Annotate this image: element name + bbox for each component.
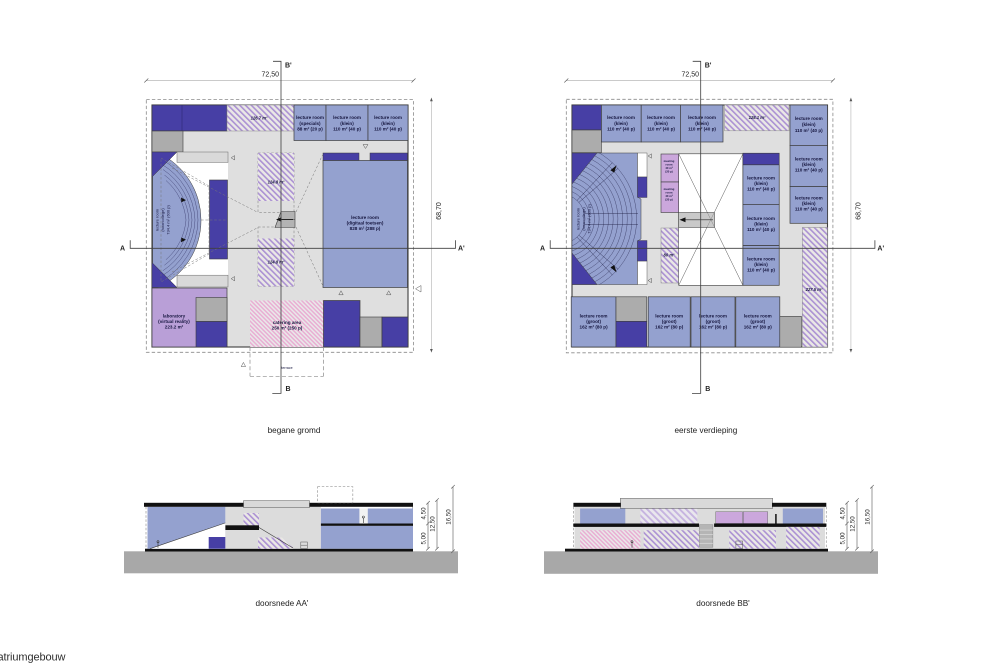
svg-text:68,70: 68,70 xyxy=(436,202,443,220)
svg-text:catering area: catering area xyxy=(273,320,302,325)
svg-text:16,50: 16,50 xyxy=(445,509,452,525)
svg-text:(klein): (klein) xyxy=(754,222,768,227)
svg-text:(digitaal toetsen): (digitaal toetsen) xyxy=(347,221,384,226)
svg-text:A': A' xyxy=(877,246,884,253)
svg-text:162 m² (80 p): 162 m² (80 p) xyxy=(655,325,684,330)
svg-text:B': B' xyxy=(285,63,292,70)
svg-text:lecture room: lecture room xyxy=(155,208,160,231)
svg-text:110 m² (40 p): 110 m² (40 p) xyxy=(607,127,635,132)
svg-text:124.8 m²: 124.8 m² xyxy=(268,180,285,185)
svg-text:lecture room: lecture room xyxy=(747,257,775,262)
svg-text:lecture room: lecture room xyxy=(795,196,823,201)
svg-text:(klein): (klein) xyxy=(614,121,628,126)
svg-text:(groot): (groot) xyxy=(750,319,765,324)
svg-text:lecture room: lecture room xyxy=(795,157,823,162)
svg-text:162 m² (80 p): 162 m² (80 p) xyxy=(744,325,773,330)
svg-text:(hoorcollege): (hoorcollege) xyxy=(160,208,165,232)
svg-text:B': B' xyxy=(705,63,712,70)
svg-text:110 m² (40 p): 110 m² (40 p) xyxy=(795,168,823,173)
svg-text:lecture room: lecture room xyxy=(333,115,361,120)
svg-text:110 m² (40 p): 110 m² (40 p) xyxy=(333,127,361,132)
svg-text:begane gromd: begane gromd xyxy=(268,426,321,435)
svg-text:(20 p): (20 p) xyxy=(665,170,673,174)
svg-text:128.1 m²: 128.1 m² xyxy=(749,115,766,120)
svg-text:4,50: 4,50 xyxy=(420,507,427,520)
svg-text:lecture room: lecture room xyxy=(688,115,716,120)
svg-text:(klein): (klein) xyxy=(654,121,668,126)
svg-text:(klein): (klein) xyxy=(340,121,354,126)
svg-text:16,50: 16,50 xyxy=(864,509,871,525)
svg-text:72,50: 72,50 xyxy=(681,72,699,79)
svg-text:(groot): (groot) xyxy=(586,319,601,324)
svg-text:(groot): (groot) xyxy=(662,319,677,324)
svg-text:(klein): (klein) xyxy=(802,122,816,127)
svg-text:lecture room: lecture room xyxy=(351,215,379,220)
svg-text:lecture room: lecture room xyxy=(747,216,775,221)
svg-text:doorsnede BB': doorsnede BB' xyxy=(696,599,750,608)
svg-text:(hoorcollege): (hoorcollege) xyxy=(581,207,586,231)
svg-text:(specials): (specials) xyxy=(299,121,321,126)
svg-text:doorsnede AA': doorsnede AA' xyxy=(255,599,308,608)
svg-text:terrace: terrace xyxy=(281,366,292,370)
svg-text:(20 p): (20 p) xyxy=(665,198,673,202)
svg-text:lecture room: lecture room xyxy=(744,314,772,319)
svg-text:12,50: 12,50 xyxy=(429,516,436,532)
svg-text:(klein): (klein) xyxy=(381,121,395,126)
svg-text:lecture room: lecture room xyxy=(747,176,775,181)
svg-text:734.4 m² (600 p): 734.4 m² (600 p) xyxy=(587,204,592,234)
svg-text:110 m² (40 p): 110 m² (40 p) xyxy=(688,127,716,132)
svg-text:124.8 m²: 124.8 m² xyxy=(268,260,285,265)
svg-text:4,50: 4,50 xyxy=(839,507,846,520)
svg-text:A: A xyxy=(540,246,545,253)
svg-text:lecture room: lecture room xyxy=(576,207,581,230)
svg-text:126.7 m²: 126.7 m² xyxy=(251,116,268,121)
svg-text:110 m² (40 p): 110 m² (40 p) xyxy=(747,187,775,192)
svg-text:72,50: 72,50 xyxy=(261,72,279,79)
svg-text:(klein): (klein) xyxy=(754,262,768,267)
svg-text:atriumgebouw: atriumgebouw xyxy=(0,652,66,664)
svg-text:(klein): (klein) xyxy=(695,121,709,126)
svg-text:B: B xyxy=(705,386,710,393)
svg-text:5,00: 5,00 xyxy=(420,532,427,545)
svg-text:110 m² (40 p): 110 m² (40 p) xyxy=(374,127,402,132)
svg-text:88 m² (20 p): 88 m² (20 p) xyxy=(297,127,323,132)
svg-text:223.2 m²: 223.2 m² xyxy=(165,325,184,330)
svg-text:12,50: 12,50 xyxy=(849,516,856,532)
svg-text:734.4 m² (600 p): 734.4 m² (600 p) xyxy=(166,205,171,235)
svg-text:68,70: 68,70 xyxy=(856,202,863,220)
svg-text:B: B xyxy=(286,386,291,393)
svg-text:lecture room: lecture room xyxy=(374,115,402,120)
svg-text:A': A' xyxy=(458,246,465,253)
svg-text:lecture room: lecture room xyxy=(580,314,608,319)
svg-text:lecture room: lecture room xyxy=(655,314,683,319)
svg-text:110 m² (40 p): 110 m² (40 p) xyxy=(647,127,675,132)
svg-text:eerste verdieping: eerste verdieping xyxy=(674,426,737,435)
svg-text:110 m² (40 p): 110 m² (40 p) xyxy=(747,227,775,232)
svg-text:(groot): (groot) xyxy=(706,319,721,324)
svg-text:80 m²: 80 m² xyxy=(664,253,676,258)
svg-text:lecture room: lecture room xyxy=(607,115,635,120)
svg-text:110 m² (40 p): 110 m² (40 p) xyxy=(747,268,775,273)
svg-text:lecture room: lecture room xyxy=(647,115,675,120)
svg-text:5,00: 5,00 xyxy=(839,532,846,545)
svg-text:lecture room: lecture room xyxy=(699,314,727,319)
svg-text:162 m² (80 p): 162 m² (80 p) xyxy=(699,325,728,330)
svg-text:(klein): (klein) xyxy=(802,162,816,167)
svg-text:828 m² (288 p): 828 m² (288 p) xyxy=(350,226,381,231)
svg-text:laboratory: laboratory xyxy=(163,314,186,319)
svg-text:250 m² (250 p): 250 m² (250 p) xyxy=(272,326,303,331)
svg-text:110 m² (40 p): 110 m² (40 p) xyxy=(795,128,823,133)
svg-text:(klein): (klein) xyxy=(754,181,768,186)
svg-text:162 m² (80 p): 162 m² (80 p) xyxy=(580,325,609,330)
svg-text:(klein): (klein) xyxy=(802,201,816,206)
svg-text:lecture room: lecture room xyxy=(296,115,324,120)
svg-text:A: A xyxy=(120,246,125,253)
svg-text:227.5 m²: 227.5 m² xyxy=(805,287,823,292)
svg-text:lecture room: lecture room xyxy=(795,116,823,121)
svg-text:(virtual reality): (virtual reality) xyxy=(158,319,190,324)
svg-text:110 m² (40 p): 110 m² (40 p) xyxy=(795,207,823,212)
